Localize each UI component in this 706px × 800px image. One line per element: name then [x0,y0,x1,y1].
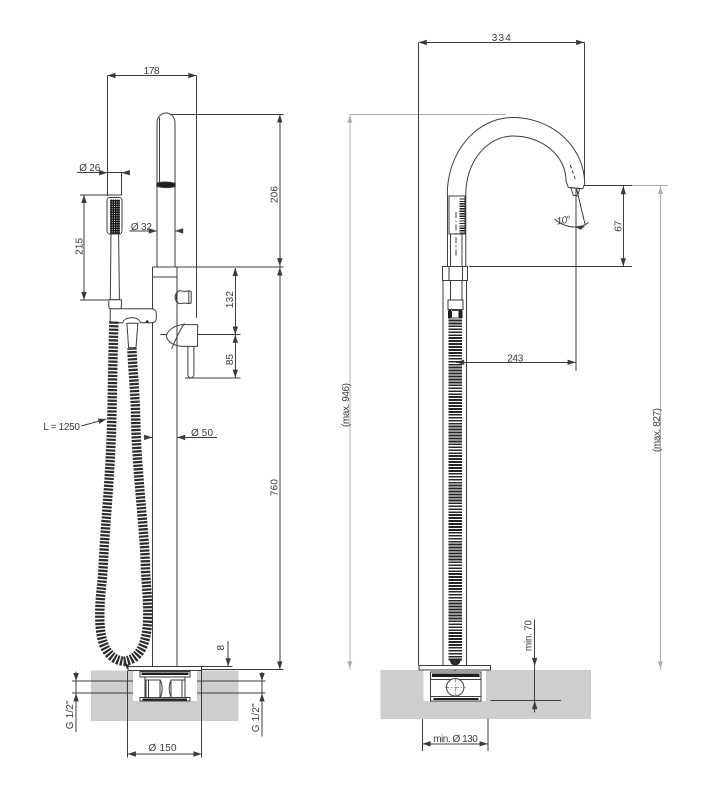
svg-text:min. 70: min. 70 [524,620,535,651]
svg-text:760: 760 [269,479,280,496]
svg-text:Ø 26: Ø 26 [79,163,100,174]
svg-text:206: 206 [270,186,281,203]
svg-text:min. Ø 130: min. Ø 130 [433,734,478,745]
svg-text:85: 85 [225,354,236,365]
svg-text:334: 334 [492,33,511,44]
svg-text:8: 8 [216,644,227,650]
svg-text:Ø 150: Ø 150 [149,743,177,754]
svg-text:215: 215 [75,237,86,254]
svg-text:10°: 10° [556,214,572,227]
svg-text:132: 132 [225,291,236,308]
svg-text:(max. 946): (max. 946) [341,383,352,427]
svg-text:L = 1250: L = 1250 [43,422,80,433]
svg-text:178: 178 [144,66,160,77]
svg-text:G 1/2": G 1/2" [65,700,76,729]
svg-text:243: 243 [507,353,523,364]
svg-text:(max. 827): (max. 827) [652,408,663,452]
svg-text:G 1/2": G 1/2" [251,703,262,732]
svg-text:Ø 50: Ø 50 [191,428,213,439]
svg-text:Ø 32: Ø 32 [131,222,152,233]
svg-text:67: 67 [613,220,624,231]
